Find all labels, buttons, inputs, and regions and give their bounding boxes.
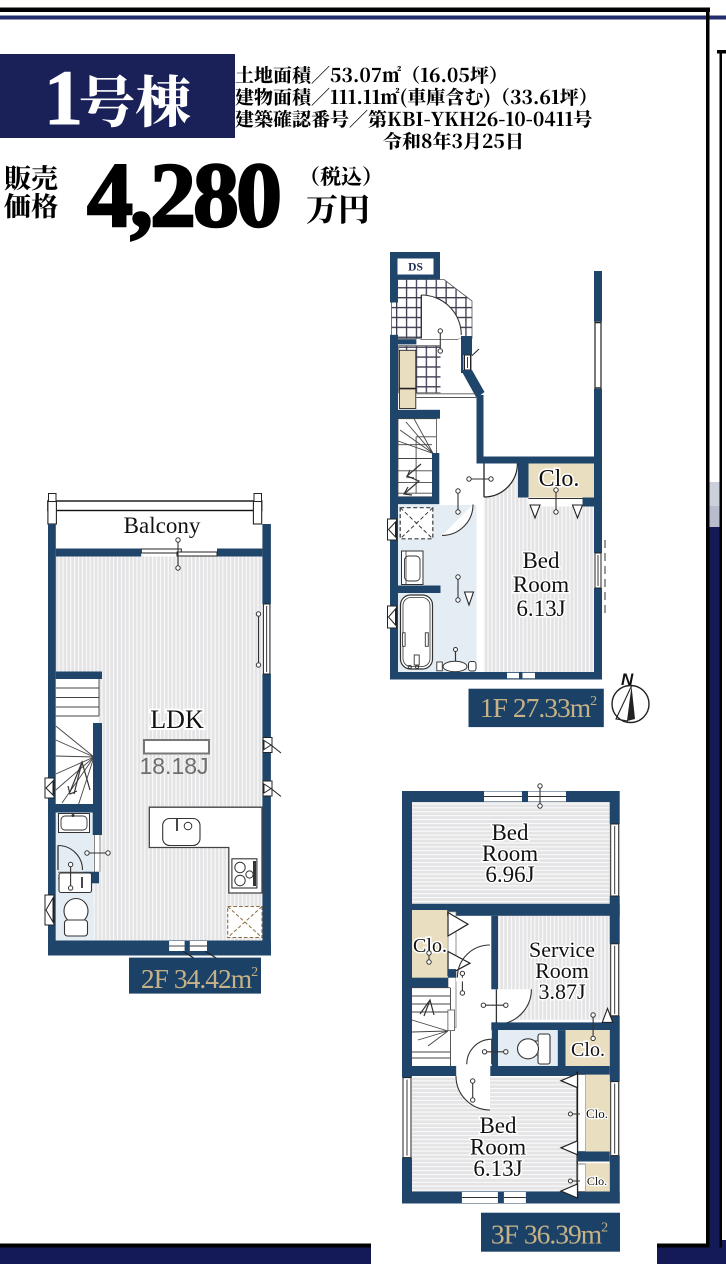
svg-text:Clo.: Clo. [587,1174,607,1188]
svg-text:2F 34.42m2: 2F 34.42m2 [141,963,258,994]
svg-text:1: 1 [44,54,83,141]
svg-text:Clo.: Clo. [539,466,580,492]
svg-text:Bed: Bed [522,548,560,573]
svg-text:3.87J: 3.87J [538,979,586,1004]
svg-text:4,280: 4,280 [87,144,279,246]
svg-text:3F 36.39m2: 3F 36.39m2 [491,1219,608,1250]
svg-text:Clo.: Clo. [586,1106,608,1121]
svg-text:Clo.: Clo. [571,1039,605,1061]
svg-text:N: N [621,670,634,689]
svg-text:6.96J: 6.96J [485,862,534,887]
svg-text:6.13J: 6.13J [516,596,565,621]
svg-text:18.18J: 18.18J [139,753,208,779]
svg-text:6.13J: 6.13J [473,1156,522,1181]
svg-text:Balcony: Balcony [124,513,201,538]
svg-text:Room: Room [513,572,569,597]
svg-text:LDK: LDK [150,705,204,734]
svg-text:1F 27.33m2: 1F 27.33m2 [480,692,597,723]
svg-text:DS: DS [408,262,423,274]
